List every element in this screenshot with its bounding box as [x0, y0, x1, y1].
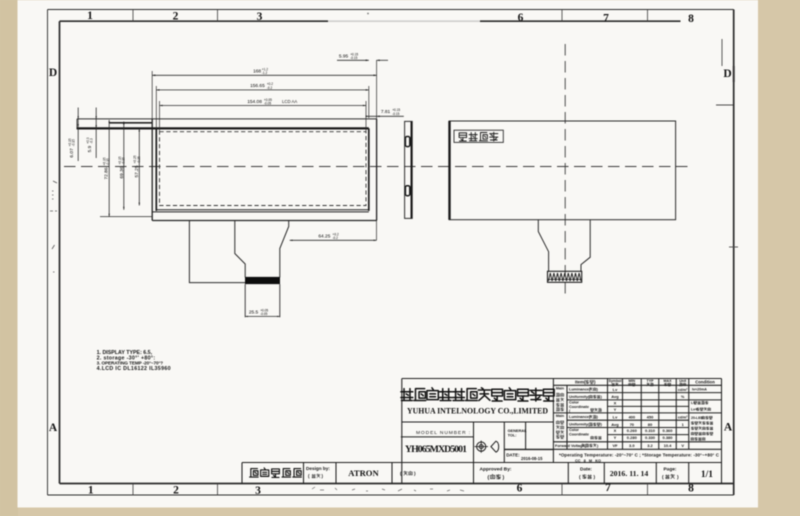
svg-text:VF: VF — [612, 443, 618, 448]
svg-text:7: 7 — [605, 482, 611, 494]
svg-text:0.330: 0.330 — [645, 435, 656, 440]
svg-text:-0.2: -0.2 — [267, 86, 273, 90]
svg-text:Main: Main — [556, 414, 564, 418]
svg-text:3: 3 — [255, 485, 261, 497]
svg-text:8: 8 — [688, 13, 694, 25]
svg-text:-0.15: -0.15 — [121, 157, 125, 164]
svg-text:MAX: MAX — [664, 379, 673, 383]
svg-text:2: 2 — [173, 485, 179, 497]
svg-text:YUHUA INTELNOLOGY CO.,LIMITED: YUHUA INTELNOLOGY CO.,LIMITED — [407, 407, 548, 416]
svg-text:450: 450 — [647, 415, 654, 420]
svg-text:25.5: 25.5 — [249, 309, 259, 315]
svg-text:10.4: 10.4 — [664, 443, 673, 448]
svg-text:7: 7 — [603, 13, 609, 25]
svg-text:400: 400 — [628, 415, 635, 420]
svg-text:Page:: Page: — [663, 467, 676, 473]
svg-text:MODEL NUMBER :: MODEL NUMBER : — [416, 430, 471, 436]
svg-text:V: V — [681, 443, 684, 448]
svg-text:-0.15: -0.15 — [72, 139, 76, 146]
svg-text:Coordinate: Coordinate — [569, 433, 589, 437]
svg-text:2016-08-15: 2016-08-15 — [521, 456, 543, 461]
svg-text:(: ( — [488, 475, 490, 481]
svg-text:Iv=20mA: Iv=20mA — [692, 388, 707, 392]
svg-text:2016. 11. 14: 2016. 11. 14 — [610, 469, 649, 478]
svg-text:Approved By:: Approved By: — [480, 467, 512, 473]
svg-text:cd/m²: cd/m² — [678, 416, 688, 420]
svg-text:Color: Color — [569, 401, 579, 405]
svg-text:A: A — [724, 422, 733, 434]
svg-text:3: 3 — [257, 11, 263, 23]
svg-text:Luminance(: Luminance( — [569, 415, 591, 419]
svg-text:0.280: 0.280 — [627, 435, 638, 440]
svg-text:cd/m²: cd/m² — [678, 388, 688, 392]
svg-text:Y: Y — [614, 435, 617, 440]
svg-text:-0.15: -0.15 — [350, 56, 357, 60]
svg-text:D: D — [49, 67, 57, 79]
svg-text:6: 6 — [517, 483, 523, 495]
svg-text:5.9: 5.9 — [87, 145, 93, 152]
svg-text:1: 1 — [87, 10, 93, 22]
svg-text:6: 6 — [518, 12, 524, 24]
svg-text:YH065MXD5001: YH065MXD5001 — [405, 444, 467, 455]
svg-text:72.86: 72.86 — [103, 167, 109, 179]
svg-text:0.310: 0.310 — [645, 428, 656, 433]
svg-text:Condition: Condition — [695, 379, 715, 384]
svg-text:Avg: Avg — [611, 394, 619, 399]
svg-text:A: A — [49, 422, 58, 434]
svg-text:0.260: 0.260 — [627, 428, 638, 433]
svg-text:Unit: Unit — [679, 379, 687, 383]
svg-text:3. OPERATING TEMP -20°~70°?: 3. OPERATING TEMP -20°~70°? — [97, 360, 164, 365]
svg-text:Luminance(: Luminance( — [569, 388, 591, 392]
svg-text:-0.3: -0.3 — [90, 138, 94, 144]
svg-text:7.81: 7.81 — [381, 109, 391, 115]
svg-text:Uniformity(: Uniformity( — [569, 395, 590, 399]
svg-text:CC 8 M KO: CC 8 M KO — [575, 459, 601, 463]
svg-text:-0.15: -0.15 — [392, 112, 399, 116]
svg-text:-1.2: -1.2 — [262, 71, 268, 75]
svg-text:X: X — [614, 428, 617, 433]
svg-text:Date:: Date: — [580, 467, 592, 473]
svg-text:-0.05: -0.05 — [264, 101, 271, 105]
svg-text:Uniformity(: Uniformity( — [569, 423, 590, 427]
svg-text:3.2: 3.2 — [647, 443, 653, 448]
svg-text:0.360: 0.360 — [662, 428, 673, 433]
svg-text:69.36: 69.36 — [119, 166, 125, 178]
svg-text:-0.25: -0.25 — [137, 156, 141, 163]
svg-text:1/1: 1/1 — [701, 470, 713, 480]
svg-text:DATE:: DATE: — [506, 452, 520, 457]
svg-text:LCD AA: LCD AA — [282, 99, 297, 104]
svg-text:0.380: 0.380 — [662, 435, 673, 440]
svg-text:8: 8 — [688, 483, 694, 495]
svg-text:3.0: 3.0 — [629, 443, 635, 448]
svg-text:MIN: MIN — [629, 379, 636, 383]
svg-text:Lv: Lv — [613, 415, 618, 420]
svg-text:D: D — [723, 68, 731, 80]
svg-text:1: 1 — [88, 485, 94, 497]
svg-text:Color: Color — [569, 428, 579, 432]
svg-text:Forward Voltage(: Forward Voltage( — [555, 444, 586, 448]
svg-text:Coordinate: Coordinate — [569, 405, 589, 409]
svg-text:Symbol: Symbol — [609, 379, 622, 383]
svg-text:2: 2 — [173, 11, 179, 23]
svg-text:ATRON: ATRON — [348, 468, 379, 478]
svg-text:4.LCD IC DL16122 IL35960: 4.LCD IC DL16122 IL35960 — [97, 366, 171, 372]
svg-text:-0.05: -0.05 — [260, 312, 267, 316]
svg-text:Item(: Item( — [575, 380, 586, 385]
svg-text:5.95: 5.95 — [339, 54, 349, 60]
svg-text:156.65: 156.65 — [250, 83, 265, 89]
svg-text:70: 70 — [630, 422, 635, 427]
svg-text:Y: Y — [614, 407, 617, 412]
svg-text:Lv: Lv — [613, 387, 618, 392]
svg-text:Design by:: Design by: — [306, 466, 330, 471]
svg-text:TYP: TYP — [647, 379, 655, 383]
svg-text:6.07: 6.07 — [69, 148, 75, 158]
svg-text:154.08: 154.08 — [247, 99, 262, 105]
svg-text:1: 1 — [682, 423, 684, 427]
svg-text:%: % — [681, 395, 685, 399]
svg-text:X: X — [614, 401, 617, 406]
svg-text:-0.2: -0.2 — [333, 236, 339, 240]
svg-text:Main: Main — [556, 387, 564, 391]
svg-text:): ) — [503, 475, 505, 481]
svg-text:*Operating Temperature: -20°~7: *Operating Temperature: -20°~70° C ; *St… — [559, 453, 720, 458]
svg-text:Avg: Avg — [611, 422, 619, 427]
svg-text:80: 80 — [648, 422, 653, 427]
svg-text:-0.15: -0.15 — [106, 158, 110, 165]
svg-text:64.25: 64.25 — [318, 233, 330, 239]
svg-text:168: 168 — [253, 69, 261, 75]
svg-text:TOL:: TOL: — [508, 432, 517, 437]
svg-text:57.25: 57.25 — [134, 165, 140, 177]
